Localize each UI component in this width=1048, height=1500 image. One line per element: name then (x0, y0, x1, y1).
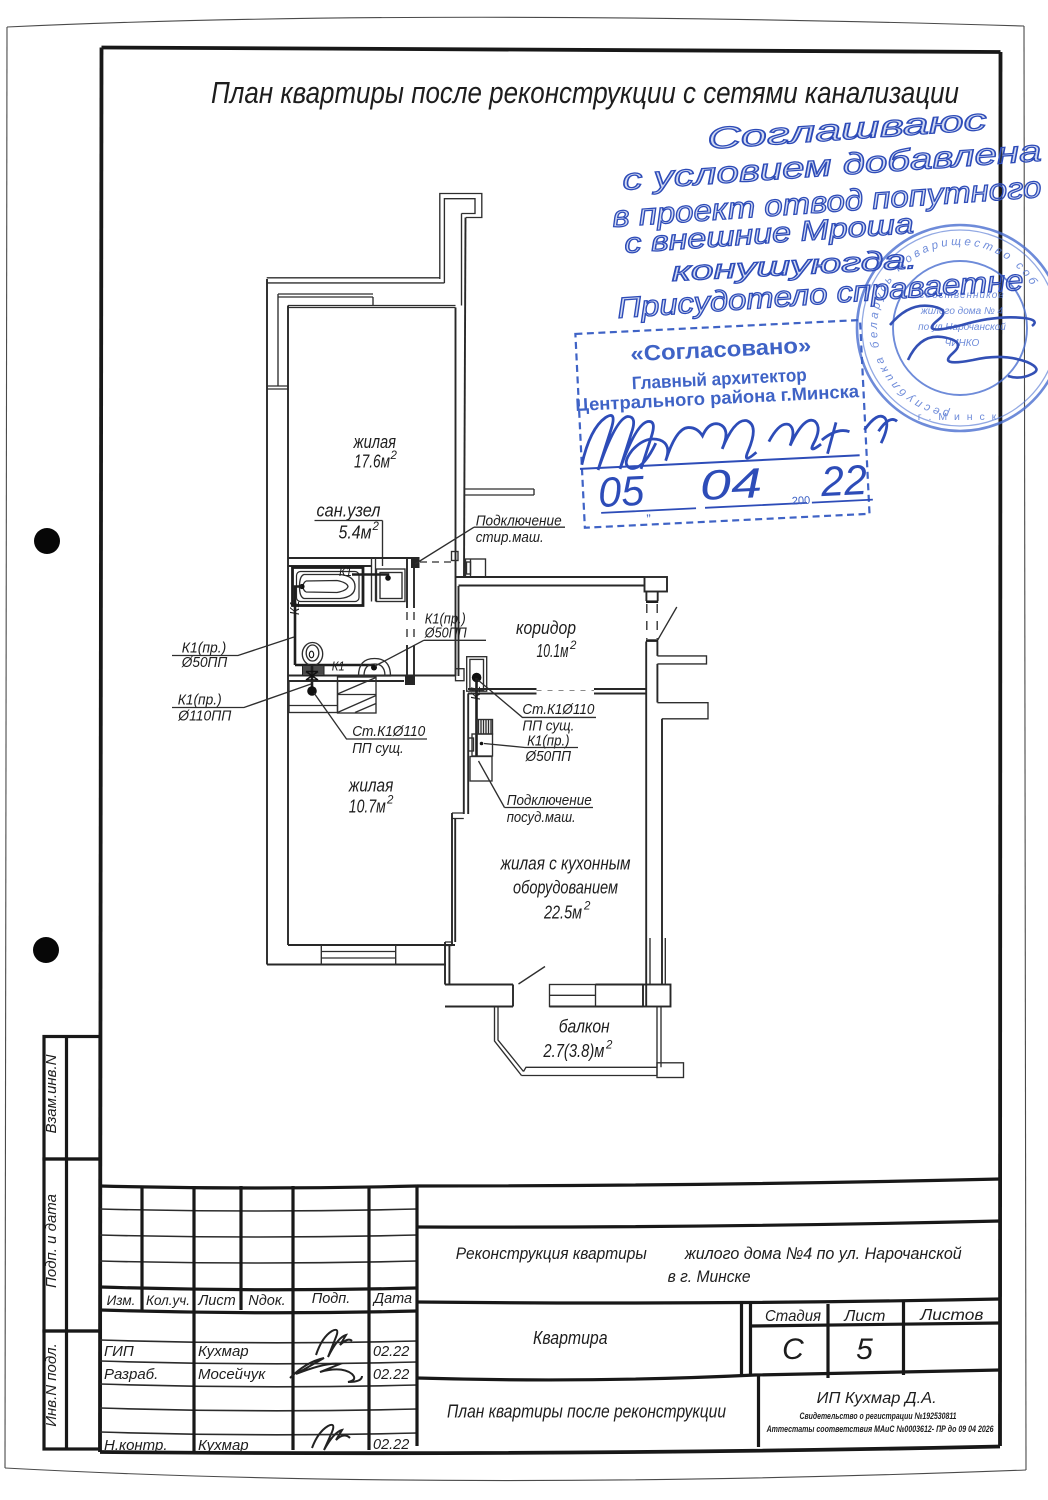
svg-text:К1: К1 (339, 565, 352, 579)
svg-text:17.6м: 17.6м (354, 451, 390, 472)
svg-text:С: С (782, 1333, 804, 1366)
svg-text:5: 5 (856, 1333, 873, 1366)
svg-text:05: 05 (597, 467, 646, 516)
svg-text:Лист: Лист (197, 1293, 235, 1309)
svg-text:Подп. и дата: Подп. и дата (43, 1194, 60, 1288)
svg-text:2: 2 (372, 521, 380, 533)
svg-text:2: 2 (605, 1040, 613, 1052)
svg-text:Ст.К1Ø110: Ст.К1Ø110 (352, 724, 425, 740)
svg-text:2: 2 (386, 795, 394, 807)
svg-text:Разраб.: Разраб. (104, 1366, 158, 1383)
svg-text:Ø110ПП: Ø110ПП (177, 709, 231, 725)
svg-text:в г. Минске: в г. Минске (668, 1267, 751, 1286)
svg-text:Ø50ПП: Ø50ПП (181, 655, 228, 671)
svg-text:ПП сущ.: ПП сущ. (522, 719, 574, 735)
svg-text:Инв.N подл.: Инв.N подл. (43, 1343, 60, 1427)
svg-text:Свидетельство о регистрации №: Свидетельство о регистрации №192530811 (800, 1411, 957, 1422)
svg-text:Взам.инв.N: Взам.инв.N (43, 1054, 60, 1133)
svg-text:„: „ (646, 504, 651, 519)
svg-text:оборудованием: оборудованием (513, 877, 618, 898)
svg-text:сан.узел: сан.узел (317, 500, 381, 521)
svg-text:Ø50ПП: Ø50ПП (424, 626, 467, 642)
svg-text:Мосейчук: Мосейчук (198, 1366, 266, 1383)
svg-text:жилая с кухонным: жилая с кухонным (500, 853, 631, 874)
svg-text:22: 22 (819, 456, 868, 505)
svg-text:10.7м: 10.7м (349, 796, 386, 817)
svg-text:2: 2 (569, 640, 577, 652)
svg-text:К1(пр.): К1(пр.) (178, 693, 222, 709)
svg-text:Кухмар: Кухмар (198, 1437, 249, 1454)
svg-text:Ст.К1Ø110: Ст.К1Ø110 (522, 702, 594, 718)
svg-text:02.22: 02.22 (373, 1367, 409, 1383)
svg-text:Nдок.: Nдок. (248, 1293, 285, 1309)
svg-text:Лист: Лист (843, 1308, 885, 1325)
svg-text:стир.маш.: стир.маш. (476, 530, 544, 546)
svg-text:г . М и н с к: г . М и н с к (918, 411, 999, 423)
svg-text:02.22: 02.22 (373, 1437, 409, 1453)
svg-text:Кол.уч.: Кол.уч. (146, 1293, 190, 1308)
svg-text:Аттестаты соответствия МАиС №: Аттестаты соответствия МАиС №0003612- ПР… (766, 1424, 994, 1435)
svg-text:Подп.: Подп. (312, 1291, 351, 1307)
svg-text:К1: К1 (332, 660, 345, 674)
svg-text:2: 2 (583, 901, 591, 913)
svg-text:План квартиры после реконструк: План квартиры после реконструкции с сетя… (211, 75, 959, 110)
svg-text:«Согласовано»: «Согласовано» (630, 332, 812, 366)
svg-text:посуд.маш.: посуд.маш. (507, 810, 576, 826)
svg-text:жилая: жилая (353, 431, 396, 452)
svg-text:ГИП: ГИП (104, 1343, 134, 1360)
svg-text:2.7(3.8)м: 2.7(3.8)м (543, 1040, 605, 1061)
svg-text:Квартира: Квартира (533, 1328, 608, 1348)
svg-text:5.4м: 5.4м (339, 522, 372, 543)
svg-text:балкон: балкон (559, 1016, 610, 1037)
svg-text:Реконструкция квартиры: Реконструкция квартиры (456, 1244, 647, 1263)
svg-text:жилого дома №4 по ул. Нарочан: жилого дома №4 по ул. Нарочанской (684, 1244, 962, 1263)
svg-text:Подключение: Подключение (507, 793, 592, 809)
svg-text:Изм.: Изм. (107, 1293, 136, 1308)
svg-text:02.22: 02.22 (373, 1344, 409, 1360)
svg-text:Ø50ПП: Ø50ПП (525, 749, 572, 765)
svg-text:200: 200 (792, 495, 811, 508)
svg-text:коридор: коридор (516, 617, 576, 638)
svg-text:2: 2 (390, 450, 398, 462)
svg-text:22.5м: 22.5м (543, 902, 582, 923)
svg-text:План квартиры после реконструк: План квартиры после реконструкции (447, 1402, 726, 1422)
svg-text:Листов: Листов (919, 1307, 983, 1324)
svg-text:Стадия: Стадия (765, 1308, 821, 1325)
svg-text:ПП сущ.: ПП сущ. (352, 741, 404, 757)
svg-text:ИП Кухмар Д.А.: ИП Кухмар Д.А. (817, 1390, 937, 1407)
svg-text:К1: К1 (288, 601, 302, 615)
svg-text:Кухмар: Кухмар (198, 1343, 249, 1360)
svg-text:10.1м: 10.1м (537, 640, 569, 661)
svg-text:жилая: жилая (348, 775, 393, 796)
svg-text:Дата: Дата (372, 1291, 412, 1307)
svg-text:Н.контр.: Н.контр. (104, 1437, 168, 1454)
svg-text:04: 04 (699, 459, 763, 509)
